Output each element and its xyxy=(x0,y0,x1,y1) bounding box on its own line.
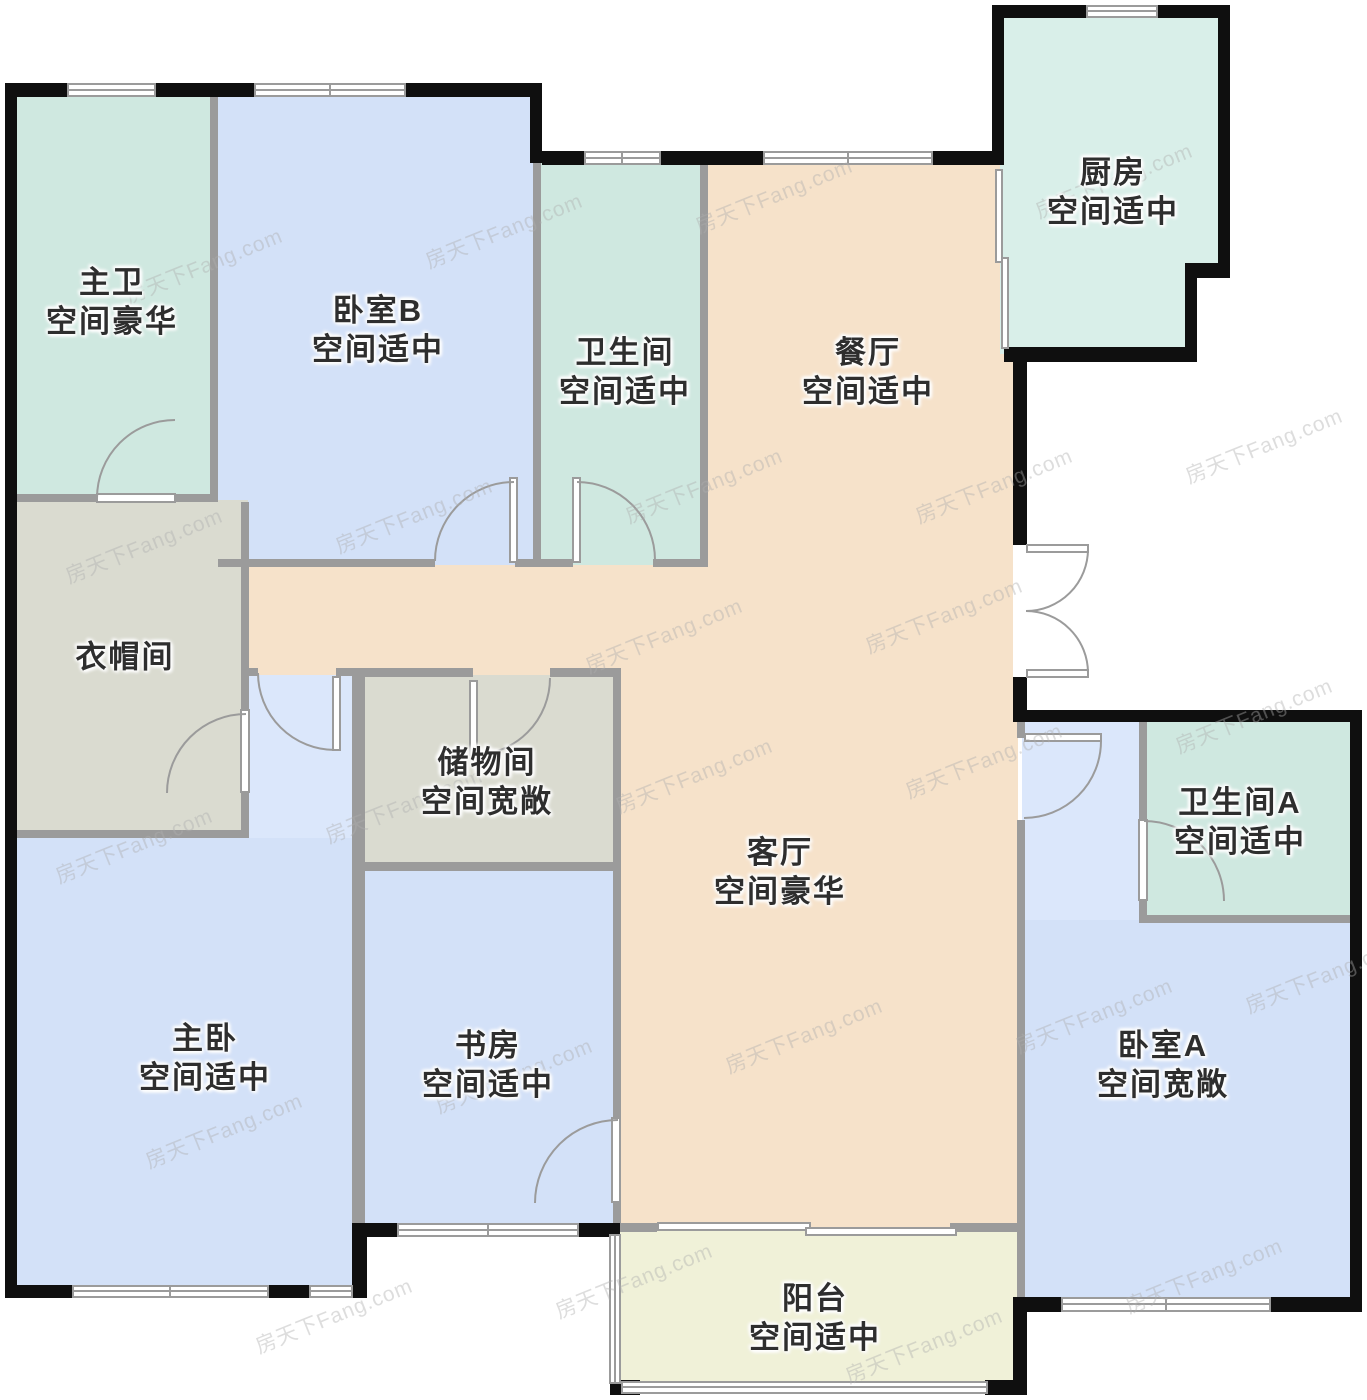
wall-segment xyxy=(541,559,573,567)
room-fill-kitchen-upper xyxy=(1000,12,1218,270)
room-name: 储物间 xyxy=(421,743,553,782)
room-label-living: 客厅 空间豪华 xyxy=(714,833,846,911)
wall-segment xyxy=(365,862,613,871)
room-label-bedroom-b: 卧室B 空间适中 xyxy=(312,291,444,369)
wall-segment xyxy=(336,668,352,676)
wall-exterior xyxy=(352,1223,398,1237)
entry-door-leaf xyxy=(1027,545,1088,552)
room-size: 空间豪华 xyxy=(46,302,178,341)
door-leaf xyxy=(612,1118,620,1202)
entry-door-leaf xyxy=(1027,670,1088,677)
sliding-door-panel xyxy=(806,1228,956,1235)
wall-segment xyxy=(352,668,365,1225)
room-name: 卧室A xyxy=(1097,1026,1229,1065)
room-name: 卧室B xyxy=(312,291,444,330)
wall-segment xyxy=(241,502,249,710)
window xyxy=(1062,1298,1270,1311)
wall-exterior xyxy=(660,151,764,165)
wall-segment xyxy=(249,668,258,676)
room-size: 空间豪华 xyxy=(714,872,846,911)
room-name: 厨房 xyxy=(1047,153,1179,192)
room-size: 空间宽敞 xyxy=(1097,1065,1229,1104)
room-name: 阳台 xyxy=(749,1279,881,1318)
window xyxy=(1087,6,1157,17)
room-name: 餐厅 xyxy=(802,333,934,372)
wall-exterior xyxy=(1218,5,1230,278)
room-fill-dining xyxy=(708,158,1013,688)
wall-exterior xyxy=(5,83,68,97)
wall-exterior xyxy=(155,83,255,97)
wall-segment xyxy=(175,494,218,502)
sliding-door-panel xyxy=(996,170,1002,262)
wall-exterior xyxy=(542,151,585,165)
door-leaf xyxy=(1025,734,1101,741)
room-fill-living xyxy=(618,685,1018,1230)
wall-exterior xyxy=(530,97,542,163)
room-name: 主卫 xyxy=(46,263,178,302)
sliding-door-panel xyxy=(1002,258,1008,348)
wall-segment xyxy=(218,559,435,567)
door-leaf xyxy=(573,478,580,562)
wall-segment xyxy=(950,1223,1018,1232)
room-fill-bedroom-a xyxy=(1022,920,1355,1304)
door-leaf xyxy=(1139,820,1147,900)
room-fill-bedroom-a-corridor xyxy=(1022,716,1143,926)
room-label-bath: 卫生间 空间适中 xyxy=(559,333,691,411)
room-label-balcony: 阳台 空间适中 xyxy=(749,1279,881,1357)
window xyxy=(585,152,660,164)
window xyxy=(73,1286,268,1297)
wall-exterior xyxy=(405,83,542,97)
room-label-kitchen: 厨房 空间适中 xyxy=(1047,153,1179,231)
room-label-dining: 餐厅 空间适中 xyxy=(802,333,934,411)
wall-exterior xyxy=(985,1380,1027,1395)
room-label-bath-a: 卫生间A 空间适中 xyxy=(1174,783,1306,861)
wall-segment xyxy=(1139,915,1355,923)
room-label-storage: 储物间 空间宽敞 xyxy=(421,743,553,821)
wall-exterior xyxy=(1270,1297,1362,1312)
wall-segment xyxy=(14,830,249,838)
wall-segment xyxy=(14,494,97,502)
room-size: 空间适中 xyxy=(1174,822,1306,861)
wall-exterior xyxy=(1013,347,1027,545)
wall-exterior xyxy=(992,5,1087,18)
door-leaf xyxy=(241,710,249,792)
room-size: 空间适中 xyxy=(559,372,691,411)
door-leaf xyxy=(510,478,517,562)
room-size: 空间适中 xyxy=(312,330,444,369)
wall-segment xyxy=(613,668,621,1118)
wall-segment xyxy=(365,668,473,677)
entry-door-arc xyxy=(1026,549,1088,611)
floorplan-canvas: 主卫 空间豪华 卧室B 空间适中 卫生间 空间适中 餐厅 空间适中 厨房 空间适… xyxy=(0,0,1367,1400)
window xyxy=(764,152,932,164)
room-name: 卫生间A xyxy=(1174,783,1306,822)
wall-segment xyxy=(210,97,218,502)
wall-exterior xyxy=(1013,710,1362,722)
wall-segment xyxy=(653,559,708,567)
wall-exterior xyxy=(5,83,17,1298)
room-name: 主卧 xyxy=(139,1019,271,1058)
window xyxy=(310,1286,352,1297)
room-size: 空间适中 xyxy=(1047,192,1179,231)
wall-segment xyxy=(1017,722,1025,738)
wall-segment xyxy=(1139,716,1147,820)
wall-segment xyxy=(533,163,541,567)
wall-exterior xyxy=(1004,347,1197,362)
room-label-master-bath: 主卫 空间豪华 xyxy=(46,263,178,341)
wall-exterior xyxy=(268,1285,310,1298)
window xyxy=(68,84,155,96)
entry-door-arc xyxy=(1026,611,1088,673)
wall-segment xyxy=(620,1223,657,1232)
room-fill-kitchen-lower xyxy=(1000,270,1192,354)
sliding-door-panel xyxy=(658,1223,810,1230)
window xyxy=(255,84,405,96)
room-size: 空间适中 xyxy=(749,1318,881,1357)
door-leaf xyxy=(97,494,175,502)
wall-exterior xyxy=(5,1285,73,1298)
room-label-master-bed: 主卧 空间适中 xyxy=(139,1019,271,1097)
room-size: 空间宽敞 xyxy=(421,782,553,821)
room-size: 空间适中 xyxy=(139,1058,271,1097)
wall-segment xyxy=(700,163,708,559)
wall-exterior xyxy=(992,5,1004,163)
window xyxy=(398,1224,578,1236)
wall-exterior xyxy=(1350,710,1362,1312)
room-name: 卫生间 xyxy=(559,333,691,372)
room-label-bedroom-a: 卧室A 空间宽敞 xyxy=(1097,1026,1229,1104)
wall-segment xyxy=(550,668,620,677)
wall-segment xyxy=(1017,820,1025,1302)
room-fill-corridor xyxy=(248,565,708,688)
wall-segment xyxy=(613,1202,621,1223)
room-label-cloak: 衣帽间 xyxy=(76,637,175,676)
room-label-study: 书房 空间适中 xyxy=(422,1026,554,1104)
room-name: 书房 xyxy=(422,1026,554,1065)
room-name: 客厅 xyxy=(714,833,846,872)
room-size: 空间适中 xyxy=(802,372,934,411)
door-leaf xyxy=(333,677,340,750)
room-size: 空间适中 xyxy=(422,1065,554,1104)
room-name: 衣帽间 xyxy=(76,637,175,676)
